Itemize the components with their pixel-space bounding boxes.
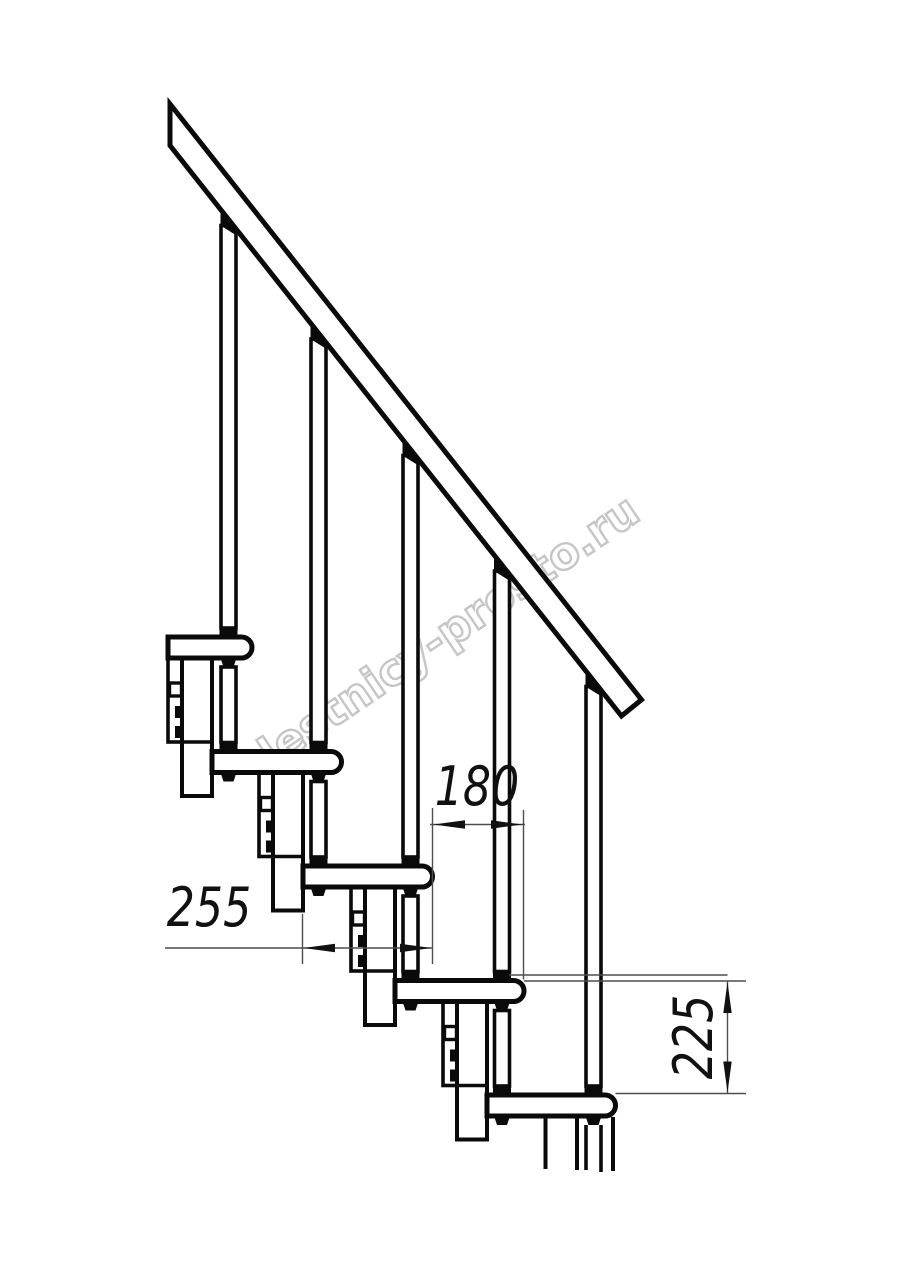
column-box — [457, 1002, 487, 1140]
column-box — [182, 658, 212, 796]
baluster-3 — [402, 440, 420, 867]
rod — [311, 782, 326, 858]
rod — [495, 1011, 510, 1087]
rod — [403, 896, 418, 972]
bolt-icon — [266, 841, 273, 853]
tread-2 — [212, 752, 342, 773]
support-column-4 — [443, 1002, 487, 1140]
rod-foot-collar — [493, 1086, 511, 1095]
rod-top-bolt — [586, 1116, 602, 1125]
baluster-rod — [586, 687, 601, 1087]
baluster-1 — [220, 210, 238, 638]
mount-tab — [170, 683, 182, 696]
dimension-label-225: 225 — [662, 995, 725, 1079]
bolt-icon — [175, 726, 182, 738]
bolt-icon — [358, 955, 365, 967]
dimension-label-180: 180 — [435, 755, 519, 818]
mount-tab — [445, 1027, 457, 1040]
rod-cut-lines — [586, 1125, 601, 1172]
baluster-rod — [311, 339, 326, 743]
baluster-bottom-collar — [585, 1086, 603, 1095]
rod-nut — [311, 887, 327, 896]
rod-foot-collar — [310, 857, 328, 866]
dimension-label-255: 255 — [167, 876, 251, 939]
column-box — [273, 773, 303, 911]
arrow-left-icon — [434, 820, 466, 828]
baluster-5 — [585, 671, 603, 1096]
support-column-1 — [168, 658, 212, 796]
rod-foot-collar — [402, 972, 420, 981]
rod-nut — [494, 1116, 510, 1125]
support-column-2 — [259, 773, 303, 911]
bolt-icon — [266, 821, 273, 833]
bolt-icon — [450, 1050, 457, 1062]
baluster-rod — [221, 226, 236, 629]
rod-foot-collar — [220, 743, 238, 752]
arrow-left-icon — [304, 944, 336, 952]
tread-1 — [168, 637, 252, 658]
staircase-drawing: lestnicy-prosto.ru — [0, 0, 914, 1280]
rod-nut — [403, 1002, 419, 1011]
bolt-icon — [358, 935, 365, 947]
baluster-bottom-collar — [220, 628, 238, 637]
mount-tab — [353, 912, 365, 925]
support-column-5-cutoff — [546, 1116, 614, 1171]
drawing-sheet: lestnicy-prosto.ru — [0, 0, 914, 1280]
column-box — [365, 887, 395, 1025]
baluster-bottom-collar — [493, 972, 511, 981]
bolt-icon — [175, 706, 182, 718]
baluster-rod — [403, 456, 418, 858]
bolt-icon — [450, 1070, 457, 1082]
baluster-bottom-collar — [310, 743, 328, 752]
tread-5 — [487, 1095, 616, 1116]
baluster-2 — [310, 323, 328, 752]
mount-tab — [261, 798, 273, 811]
baluster-bottom-collar — [402, 857, 420, 866]
rod — [221, 667, 236, 743]
tread-3 — [303, 866, 433, 887]
rod-nut — [221, 773, 237, 782]
column-cut-lines — [546, 1116, 614, 1171]
support-column-3 — [351, 887, 395, 1025]
front-rod-5-cutoff — [586, 1116, 602, 1172]
dimension-riser-height: 225 — [509, 975, 746, 1094]
tread-4 — [395, 981, 524, 1002]
